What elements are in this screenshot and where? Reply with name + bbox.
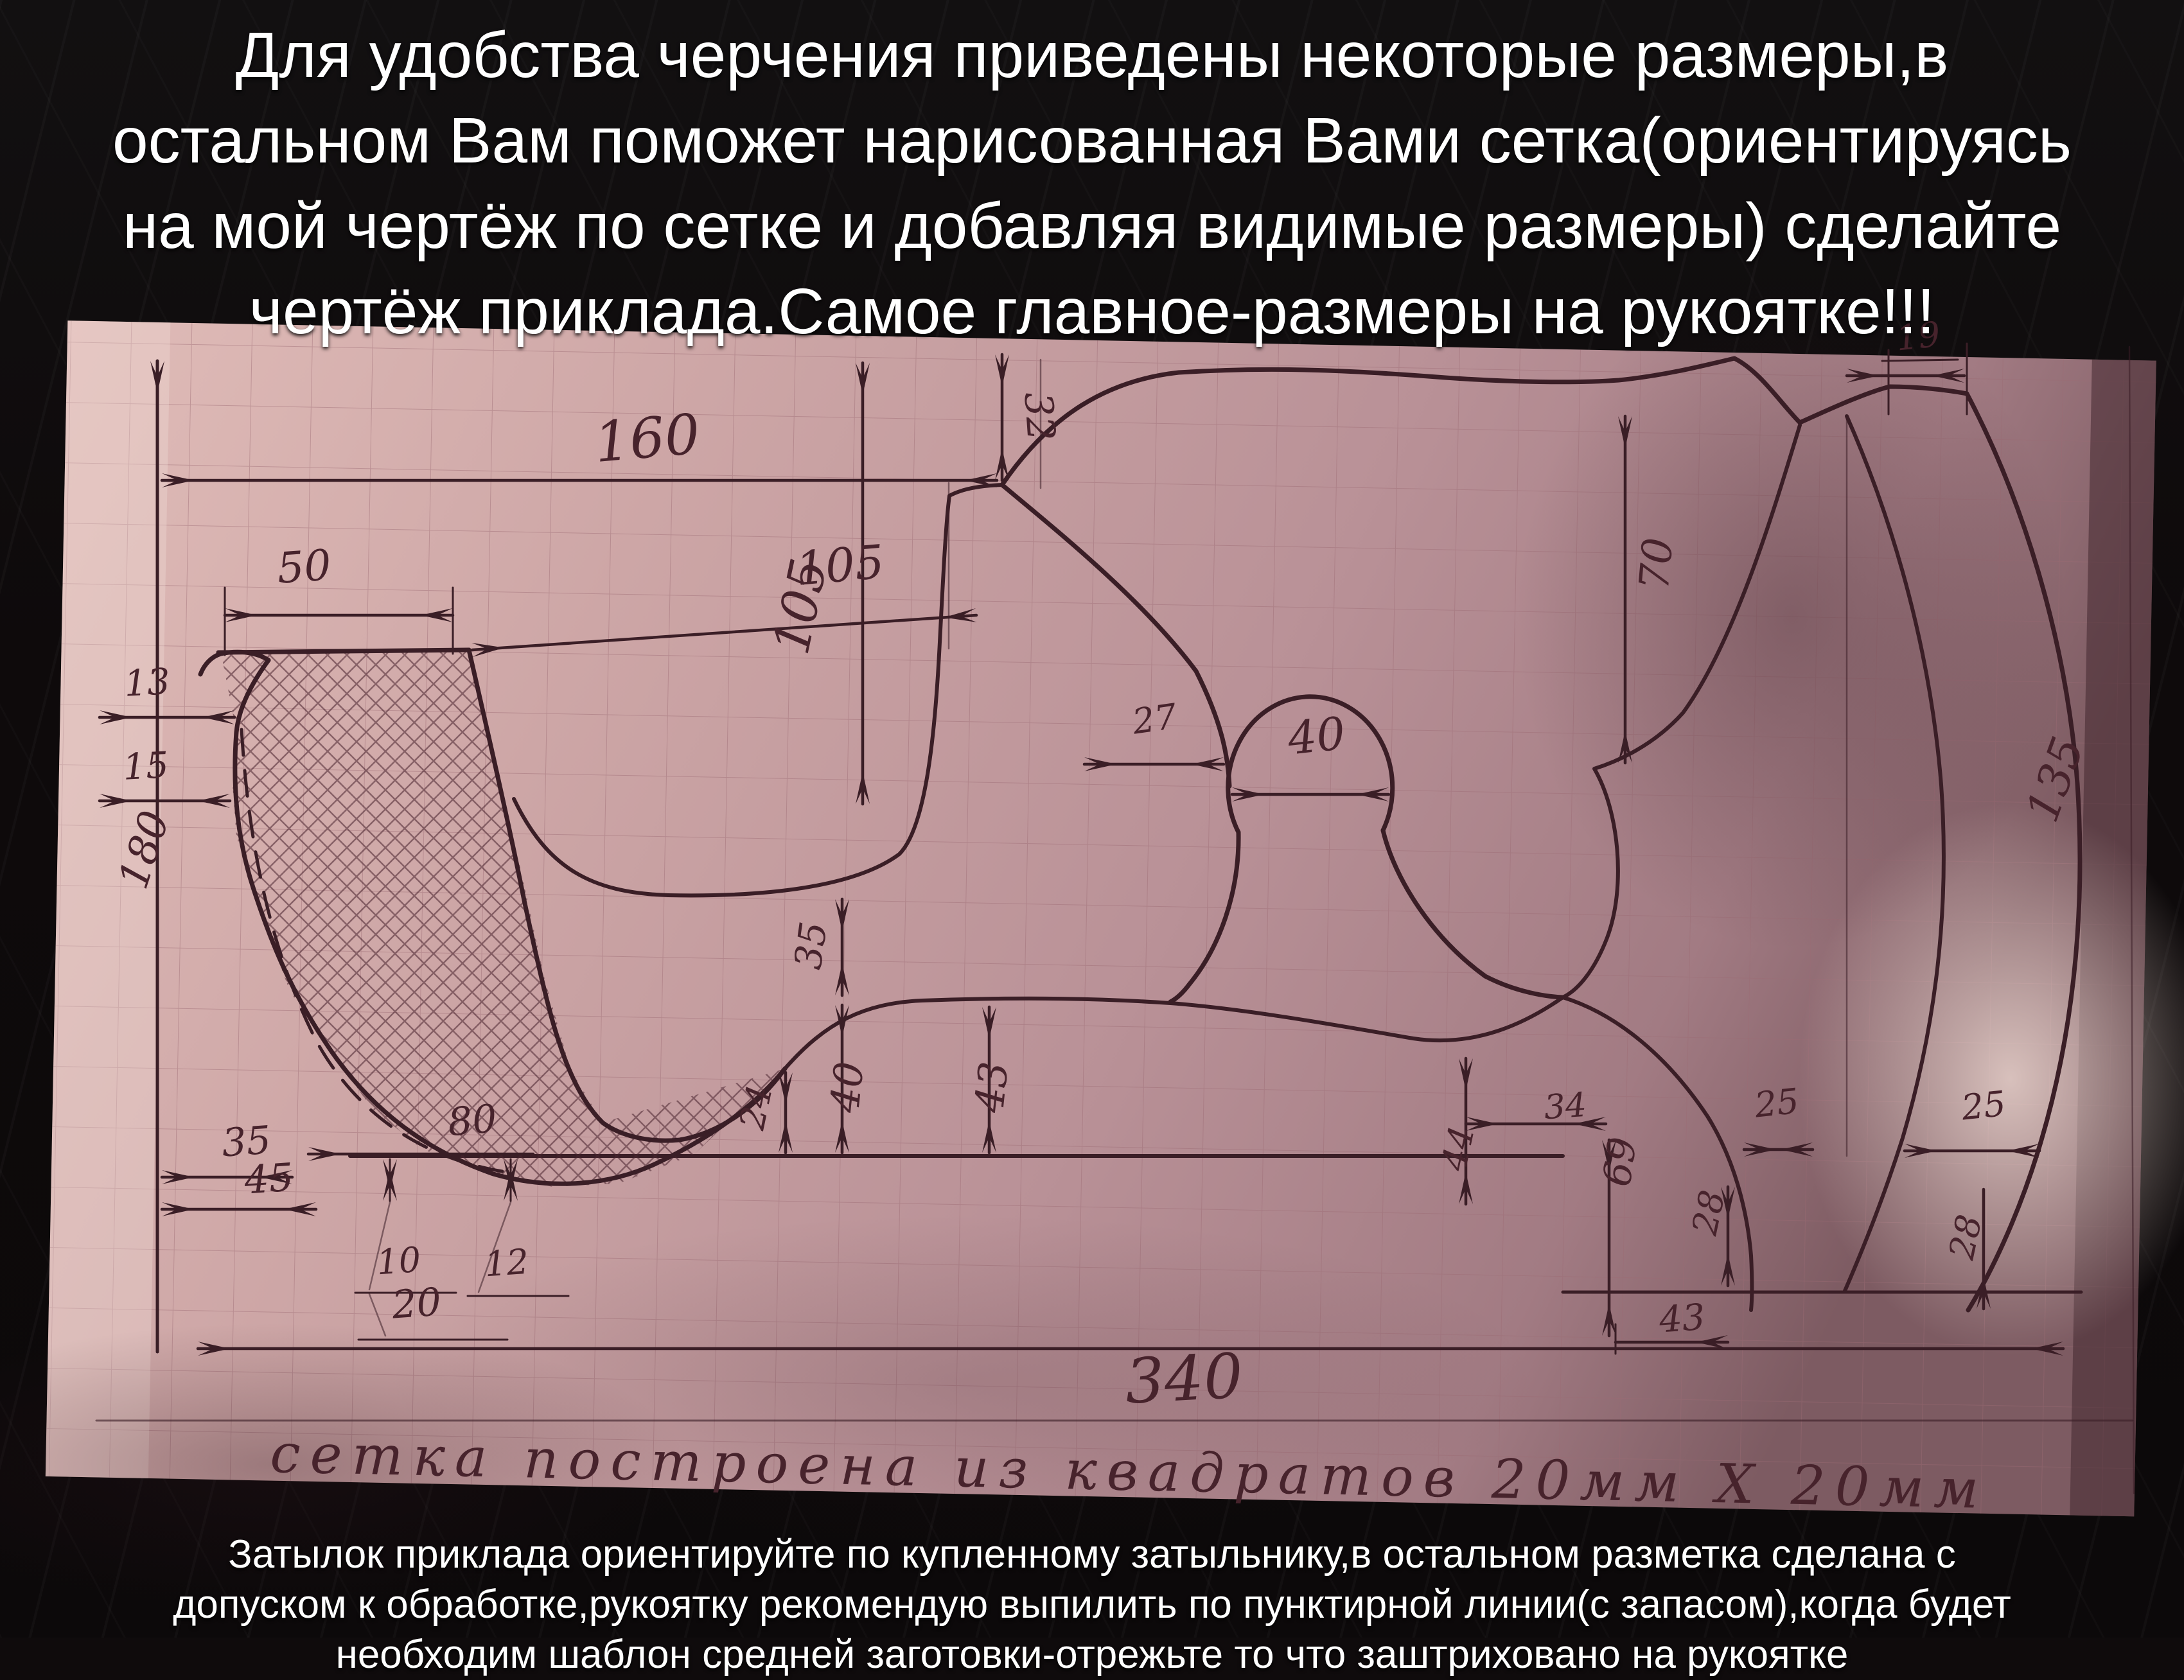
dim-label-12: 12 [483,1241,530,1285]
dim-label-80: 80 [446,1096,498,1145]
underline-19 [1882,360,1958,361]
title-overlay: Для удобства черчения приведены некоторы… [0,13,2184,354]
dim-label-10: 10 [375,1239,422,1283]
dim-label-40-circle: 40 [1285,707,1348,766]
dim-label-43-bottom: 43 [1657,1297,1707,1342]
title-line-1: Для удобства черчения приведены некоторы… [0,13,2184,98]
dim-label-32: 32 [1015,390,1063,442]
title-line-4: чертёж приклада.Самое главное-размеры на… [0,269,2184,354]
dim-label-20: 20 [390,1279,443,1327]
dim-label-70: 70 [1631,536,1683,592]
grip-top-line [218,650,469,652]
bottom-line-1: Затылок приклада ориентируйте по купленн… [0,1530,2184,1580]
dim-label-45: 45 [242,1155,295,1203]
dim-label-35-mid: 35 [786,919,836,972]
dim-label-15: 15 [122,744,170,789]
dim-label-40-vert: 40 [821,1060,873,1116]
dim-label-50: 50 [276,540,333,593]
dim-label-43-vert: 43 [965,1060,1017,1116]
dim-label-25b: 25 [1959,1083,2008,1128]
dim-label-105h: 105 [794,534,886,596]
dim-label-340: 340 [1123,1340,1245,1417]
bottom-note-overlay: Затылок приклада ориентируйте по купленн… [0,1530,2184,1680]
bottom-line-2: допуском к обработке,рукоятку рекомендую… [0,1580,2184,1630]
dim-label-34: 34 [1543,1086,1588,1127]
title-line-3: на мой чертёж по сетке и добавляя видимы… [0,184,2184,269]
title-line-2: остальном Вам поможет нарисованная Вами … [0,98,2184,184]
dim-label-13: 13 [123,661,172,705]
dim-label-25a: 25 [1752,1081,1801,1126]
dim-label-160: 160 [592,402,702,475]
dim-label-27: 27 [1129,696,1179,742]
dim-label-69: 69 [1594,1135,1646,1189]
